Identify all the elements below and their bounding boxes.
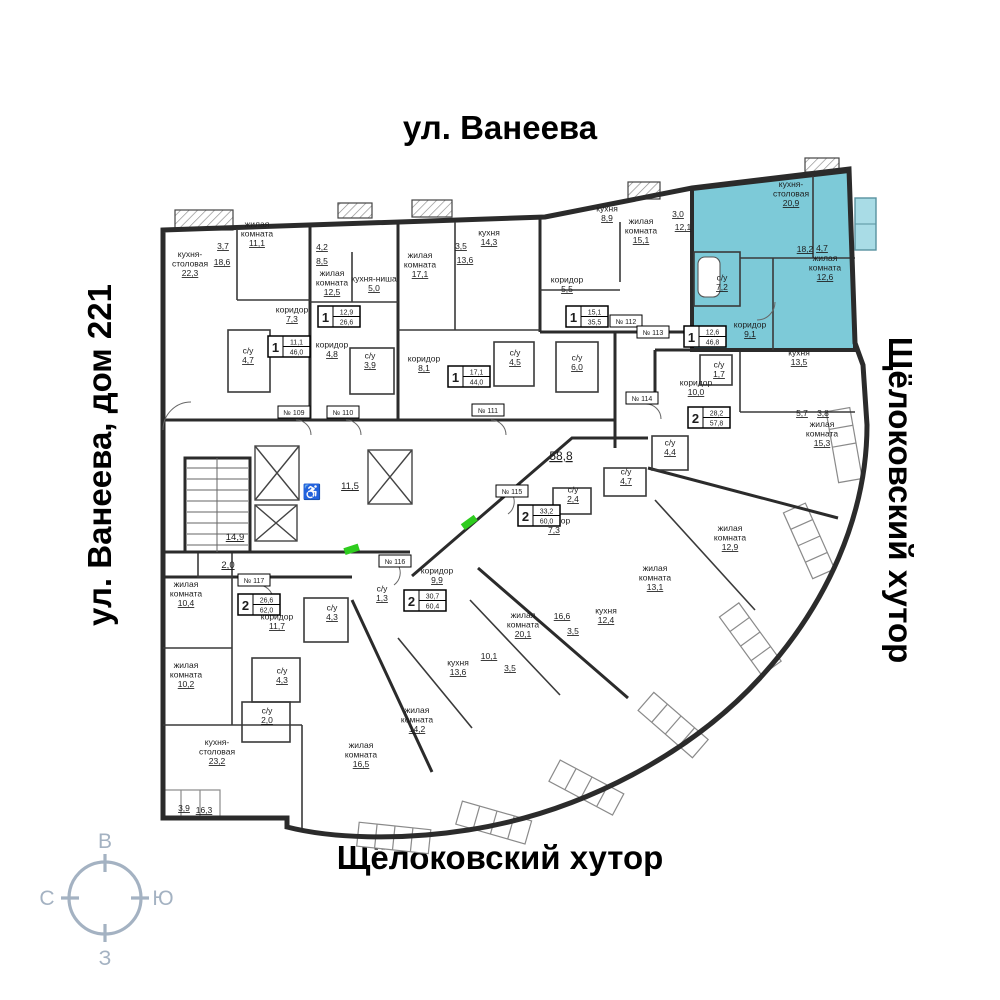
svg-text:2: 2 — [522, 509, 529, 524]
svg-text:17,1: 17,1 — [470, 370, 484, 377]
apartment-badge[interactable]: 112,926,6 — [318, 306, 360, 327]
room-label: 2,0 — [221, 560, 234, 571]
room-label: 5,7 — [796, 408, 808, 418]
svg-text:46,0: 46,0 — [290, 350, 304, 357]
svg-text:№ 114: № 114 — [632, 396, 653, 403]
room-label: кухня13,5 — [788, 348, 810, 368]
room-label: 18,2 — [797, 244, 814, 254]
apartment-badge[interactable]: 230,760,4 — [404, 590, 446, 611]
apartment-badge[interactable]: 115,135,5 — [566, 306, 608, 327]
unit-plate: № 111 — [472, 404, 504, 416]
apartment-badge[interactable]: 112,646,8 — [684, 326, 726, 347]
room-label: коридор5,5 — [551, 275, 584, 295]
unit-plate: № 114 — [626, 392, 658, 404]
unit-plate: № 116 — [379, 555, 411, 567]
svg-text:1: 1 — [570, 310, 577, 325]
room-label: жилаякомната17,1 — [404, 250, 436, 279]
room-label: с/у4,5 — [509, 348, 521, 368]
room-label: коридор9,9 — [421, 566, 454, 586]
room-label: 8,5 — [316, 256, 328, 266]
svg-text:№ 109: № 109 — [283, 410, 304, 417]
svg-text:62,0: 62,0 — [260, 608, 274, 615]
svg-text:№ 115: № 115 — [502, 489, 523, 496]
room-label: с/у1,7 — [713, 360, 725, 380]
unit-plate: № 109 — [278, 406, 310, 418]
unit-plate: № 115 — [496, 485, 528, 497]
room-label: 10,1 — [481, 651, 498, 661]
svg-text:2: 2 — [408, 594, 415, 609]
svg-text:60,4: 60,4 — [426, 604, 440, 611]
svg-text:26,6: 26,6 — [260, 598, 274, 605]
room-label: с/у4,3 — [326, 603, 338, 623]
svg-text:60,0: 60,0 — [540, 519, 554, 526]
svg-text:№ 117: № 117 — [244, 578, 265, 585]
room-label: коридор4,8 — [316, 340, 349, 360]
unit-plate: № 112 — [610, 315, 642, 327]
svg-text:57,8: 57,8 — [710, 421, 724, 428]
apartment-badge[interactable]: 226,662,0 — [238, 594, 280, 615]
room-label: с/у4,7 — [620, 467, 632, 487]
room-label: 3,5 — [504, 663, 516, 673]
svg-text:44,0: 44,0 — [470, 380, 484, 387]
svg-text:2: 2 — [242, 598, 249, 613]
svg-text:30,7: 30,7 — [426, 594, 440, 601]
compass-south-label: Ю — [152, 887, 173, 910]
room-label: кухня14,3 — [478, 228, 500, 248]
svg-text:№ 110: № 110 — [333, 410, 354, 417]
room-label: 3,0 — [672, 209, 684, 219]
room-label: 11,5 — [341, 481, 359, 492]
room-label: кухня8,9 — [596, 204, 618, 224]
unit-plate: № 110 — [327, 406, 359, 418]
svg-text:2: 2 — [692, 411, 699, 426]
room-label: жилаякомната10,2 — [170, 660, 202, 689]
room-label: с/у6,0 — [571, 353, 583, 373]
room-label: 16,3 — [196, 805, 213, 815]
room-label: 13,6 — [457, 255, 474, 265]
room-label: кухня-столовая23,2 — [199, 737, 236, 766]
svg-text:12,9: 12,9 — [340, 310, 354, 317]
room-label: 14,9 — [226, 532, 245, 543]
room-label: жилаякомната13,1 — [639, 563, 671, 592]
compass-north-label: С — [39, 887, 54, 910]
room-label: с/у1,3 — [376, 584, 388, 604]
room-label: жилаякомната12,5 — [316, 268, 348, 297]
room-label: коридор7,3 — [276, 305, 309, 325]
room-label: 12,1 — [675, 222, 692, 232]
room-label: 58,8 — [549, 449, 573, 463]
room-label: 3,7 — [217, 241, 229, 251]
room-label: 4,7 — [816, 243, 828, 253]
facade-balconies — [162, 408, 862, 854]
svg-text:33,2: 33,2 — [540, 509, 554, 516]
room-label: жилаякомната12,9 — [714, 523, 746, 552]
stair-core: ♿ — [185, 446, 412, 552]
wheelchair-icon: ♿ — [303, 483, 322, 501]
apartment-badge[interactable]: 228,257,8 — [688, 407, 730, 428]
svg-text:1: 1 — [688, 330, 695, 345]
svg-text:1: 1 — [272, 340, 279, 355]
room-label: 3,8 — [817, 408, 829, 418]
room-label: кухня12,4 — [595, 606, 617, 626]
room-label: с/у7,2 — [716, 273, 728, 293]
floorplan-page: ул. Ванеева ул. Ванеева, дом 221 Щёлоков… — [0, 0, 1000, 1000]
room-label: 18,6 — [214, 257, 231, 267]
room-label: с/у4,4 — [664, 438, 676, 458]
unit-plate: № 117 — [238, 574, 270, 586]
room-label: с/у3,9 — [364, 351, 376, 371]
room-label: кухня13,6 — [447, 658, 469, 678]
room-label: коридор8,1 — [408, 354, 441, 374]
compass-west-label: З — [99, 947, 112, 970]
room-label: жилаякомната15,1 — [625, 216, 657, 245]
svg-text:35,5: 35,5 — [588, 320, 602, 327]
room-label: коридор10,0 — [680, 378, 713, 398]
svg-text:№ 113: № 113 — [643, 330, 664, 337]
svg-text:12,6: 12,6 — [706, 330, 720, 337]
svg-text:№ 112: № 112 — [616, 319, 637, 326]
room-label: кухня-ниша5,0 — [351, 274, 397, 294]
room-label: с/у4,3 — [276, 666, 288, 686]
room-label: жилаякомната11,1 — [241, 219, 273, 248]
room-label: 16,6 — [554, 611, 571, 621]
room-label: с/у2,4 — [567, 485, 579, 505]
room-label: с/у2,0 — [261, 706, 273, 726]
svg-text:1: 1 — [322, 310, 329, 325]
room-label: 3,9 — [178, 803, 190, 813]
svg-text:1: 1 — [452, 370, 459, 385]
compass-east-label: В — [98, 830, 112, 853]
room-label: кухня-столовая22,3 — [172, 249, 209, 278]
svg-text:№ 116: № 116 — [385, 559, 406, 566]
room-label: жилаякомната20,1 — [507, 610, 539, 639]
svg-text:№ 111: № 111 — [478, 408, 498, 415]
room-label: 4,2 — [316, 242, 328, 252]
svg-text:46,8: 46,8 — [706, 340, 720, 347]
room-label: с/у4,7 — [242, 346, 254, 366]
apartment-badge[interactable]: 233,260,0 — [518, 505, 560, 526]
room-label: жилаякомната14,2 — [401, 705, 433, 734]
room-label: жилаякомната10,4 — [170, 579, 202, 608]
svg-text:15,1: 15,1 — [588, 310, 602, 317]
room-label: жилаякомната16,5 — [345, 740, 377, 769]
unit-plate: № 113 — [637, 326, 669, 338]
apartment-badge[interactable]: 117,144,0 — [448, 366, 490, 387]
room-label: 3,5 — [455, 241, 467, 251]
svg-text:28,2: 28,2 — [710, 411, 724, 418]
svg-text:11,1: 11,1 — [290, 340, 303, 347]
svg-text:26,6: 26,6 — [340, 320, 354, 327]
apartment-badge[interactable]: 111,146,0 — [268, 336, 310, 357]
compass-rose: В Ю З С — [30, 820, 180, 980]
room-label: 3,5 — [567, 626, 579, 636]
